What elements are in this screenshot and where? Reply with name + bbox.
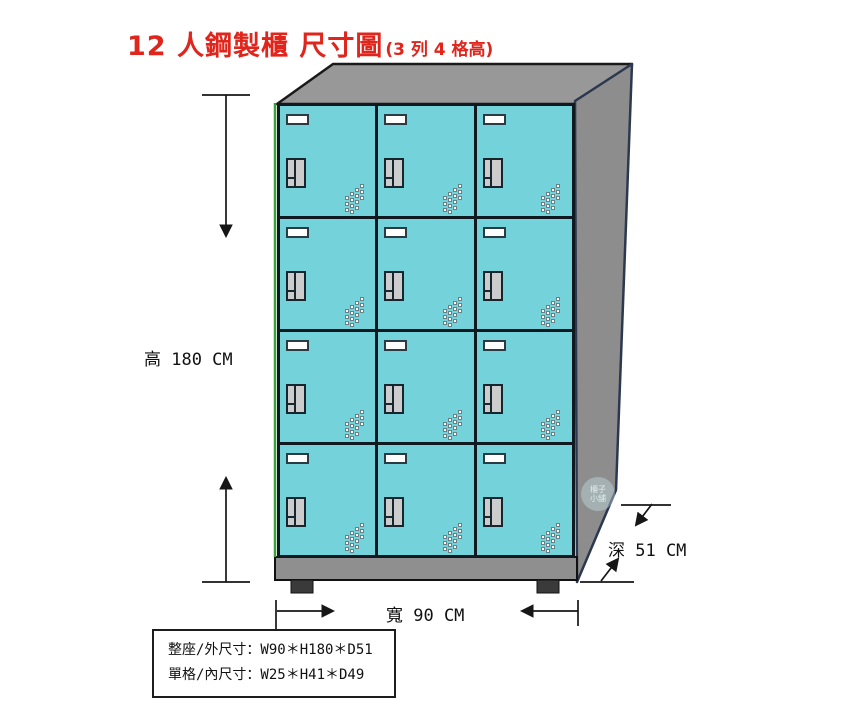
spec-outer-dimensions: 整座/外尺寸：W90＊H180＊D51 — [168, 638, 394, 663]
width-dimension-label: 寬 90 CM — [386, 601, 464, 626]
locker-door — [280, 106, 375, 216]
height-dimension-label: 高 180 CM — [144, 345, 233, 370]
door-vent-holes — [443, 409, 465, 442]
door-vent-holes — [345, 183, 367, 216]
door-handle-lock — [286, 497, 306, 527]
locker-door — [378, 106, 473, 216]
door-vent-holes — [345, 522, 367, 555]
cabinet-foot-left — [291, 580, 313, 593]
locker-door — [280, 332, 375, 442]
cabinet-base — [275, 557, 577, 580]
door-handle-lock — [286, 158, 306, 188]
locker-door — [477, 332, 572, 442]
door-handle-lock — [483, 497, 503, 527]
door-handle-lock — [483, 158, 503, 188]
door-handle-lock — [286, 271, 306, 301]
locker-door — [378, 219, 473, 329]
locker-door — [477, 219, 572, 329]
locker-door — [280, 219, 375, 329]
door-vent-holes — [443, 296, 465, 329]
locker-dimension-diagram: 12 人鋼製櫃 尺寸圖 (3 列 4 格高) — [0, 0, 846, 720]
door-vent-holes — [443, 522, 465, 555]
door-name-plate — [384, 227, 407, 238]
door-name-plate — [483, 114, 506, 125]
door-handle-lock — [384, 384, 404, 414]
door-name-plate — [483, 227, 506, 238]
locker-door — [477, 106, 572, 216]
door-vent-holes — [541, 296, 563, 329]
door-handle-lock — [483, 271, 503, 301]
door-vent-holes — [345, 296, 367, 329]
door-name-plate — [483, 340, 506, 351]
height-dimension-arrows — [202, 95, 250, 582]
door-name-plate — [286, 453, 309, 464]
door-handle-lock — [384, 158, 404, 188]
locker-doors-grid — [277, 103, 575, 558]
door-name-plate — [286, 114, 309, 125]
door-vent-holes — [541, 522, 563, 555]
door-vent-holes — [443, 183, 465, 216]
watermark-text-line1: 櫃子 — [590, 485, 606, 494]
locker-door — [378, 332, 473, 442]
door-handle-lock — [286, 384, 306, 414]
cabinet-foot-right — [537, 580, 559, 593]
door-name-plate — [286, 340, 309, 351]
locker-door — [280, 445, 375, 555]
door-name-plate — [384, 340, 407, 351]
door-handle-lock — [384, 497, 404, 527]
door-vent-holes — [541, 183, 563, 216]
depth-dimension-label: 深 51 CM — [608, 536, 686, 561]
watermark-stamp: 櫃子 小舖 — [581, 477, 615, 511]
locker-door — [378, 445, 473, 555]
door-vent-holes — [345, 409, 367, 442]
watermark-text-line2: 小舖 — [590, 494, 606, 503]
door-handle-lock — [384, 271, 404, 301]
spec-box: 整座/外尺寸：W90＊H180＊D51 單格/內尺寸：W25＊H41＊D49 — [152, 629, 396, 698]
door-name-plate — [286, 227, 309, 238]
spec-inner-dimensions: 單格/內尺寸：W25＊H41＊D49 — [168, 663, 394, 688]
door-name-plate — [384, 453, 407, 464]
door-name-plate — [483, 453, 506, 464]
locker-door — [477, 445, 572, 555]
door-vent-holes — [541, 409, 563, 442]
door-handle-lock — [483, 384, 503, 414]
door-name-plate — [384, 114, 407, 125]
